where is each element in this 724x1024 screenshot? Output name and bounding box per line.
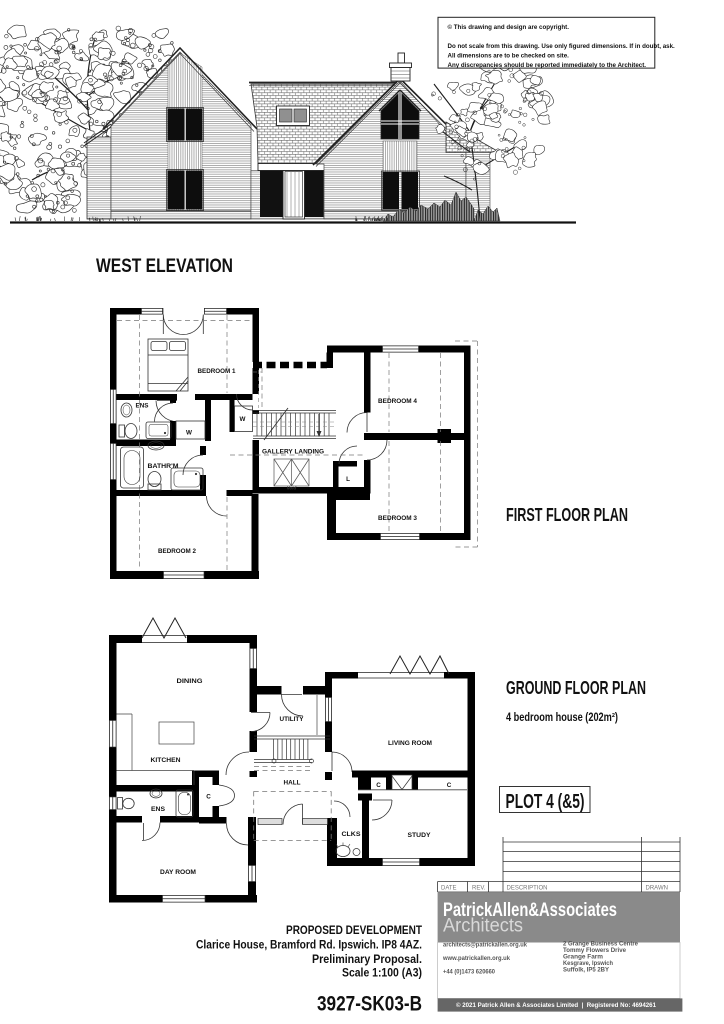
- svg-text:DINING: DINING: [177, 678, 203, 685]
- svg-text:ENS: ENS: [151, 806, 165, 813]
- svg-text:KITCHEN: KITCHEN: [151, 757, 181, 764]
- svg-text:All dimensions are to be check: All dimensions are to be checked on site…: [448, 53, 570, 60]
- svg-text:FIRST FLOOR PLAN: FIRST FLOOR PLAN: [506, 505, 628, 525]
- svg-text:Void: Void: [287, 486, 297, 491]
- svg-text:architects@patrickallen.org.uk: architects@patrickallen.org.uk: [443, 942, 528, 949]
- svg-text:REV.: REV.: [472, 886, 486, 892]
- svg-text:© This drawing and design are: © This drawing and design are copyright.: [448, 24, 570, 31]
- svg-text:W: W: [240, 416, 246, 423]
- svg-text:Preliminary Proposal.: Preliminary Proposal.: [312, 952, 422, 966]
- svg-text:DRAWN: DRAWN: [646, 886, 668, 892]
- svg-text:DAY ROOM: DAY ROOM: [160, 869, 196, 876]
- svg-text:UTILITY: UTILITY: [280, 716, 305, 723]
- svg-text:Scale 1:100 (A3): Scale 1:100 (A3): [342, 966, 422, 980]
- svg-text:Any discrepancies should be re: Any discrepancies should be reported imm…: [448, 62, 647, 69]
- svg-text:+44 (0)1473 620660: +44 (0)1473 620660: [443, 969, 496, 976]
- svg-text:HALL: HALL: [284, 780, 301, 787]
- svg-text:C: C: [376, 782, 381, 789]
- svg-text:4 bedroom house (202m²): 4 bedroom house (202m²): [506, 712, 618, 724]
- svg-text:Clarice House, Bramford Rd. Ip: Clarice House, Bramford Rd. Ipswich. IP8…: [196, 938, 422, 952]
- svg-text:C: C: [447, 782, 452, 789]
- svg-text:BEDROOM 4: BEDROOM 4: [378, 398, 418, 405]
- svg-text:C: C: [206, 794, 211, 801]
- svg-text:BEDROOM 3: BEDROOM 3: [378, 515, 418, 522]
- svg-text:LIVING ROOM: LIVING ROOM: [388, 740, 432, 747]
- svg-text:Architects: Architects: [443, 915, 523, 937]
- svg-text:www.patrickallen.org.uk: www.patrickallen.org.uk: [442, 955, 510, 962]
- svg-text:Suffolk, IP5 2BY: Suffolk, IP5 2BY: [563, 967, 610, 974]
- svg-text:W: W: [186, 430, 192, 437]
- svg-text:3927-SK03-B: 3927-SK03-B: [317, 992, 422, 1016]
- svg-text:PROPOSED DEVELOPMENT: PROPOSED DEVELOPMENT: [286, 923, 423, 937]
- svg-text:BATHR'M: BATHR'M: [148, 463, 179, 470]
- svg-text:DESCRIPTION: DESCRIPTION: [507, 886, 548, 892]
- svg-text:GROUND FLOOR PLAN: GROUND FLOOR PLAN: [506, 678, 646, 698]
- svg-text:Do not scale from this drawing: Do not scale from this drawing. Use only…: [448, 43, 676, 50]
- svg-text:BEDROOM 2: BEDROOM 2: [158, 548, 196, 555]
- svg-text:ENS: ENS: [136, 403, 149, 410]
- svg-text:DATE: DATE: [441, 886, 457, 892]
- svg-text:GALLERY LANDING: GALLERY LANDING: [262, 449, 324, 456]
- svg-text:L: L: [346, 476, 350, 483]
- svg-text:WEST ELEVATION: WEST ELEVATION: [96, 256, 233, 277]
- svg-text:© 2021 Patrick Allen & Associa: © 2021 Patrick Allen & Associates Limite…: [456, 1001, 656, 1009]
- svg-text:BEDROOM 1: BEDROOM 1: [198, 368, 236, 375]
- svg-text:STUDY: STUDY: [408, 832, 432, 839]
- svg-text:PLOT 4 (&5): PLOT 4 (&5): [506, 791, 585, 813]
- svg-text:CLKS: CLKS: [342, 831, 361, 838]
